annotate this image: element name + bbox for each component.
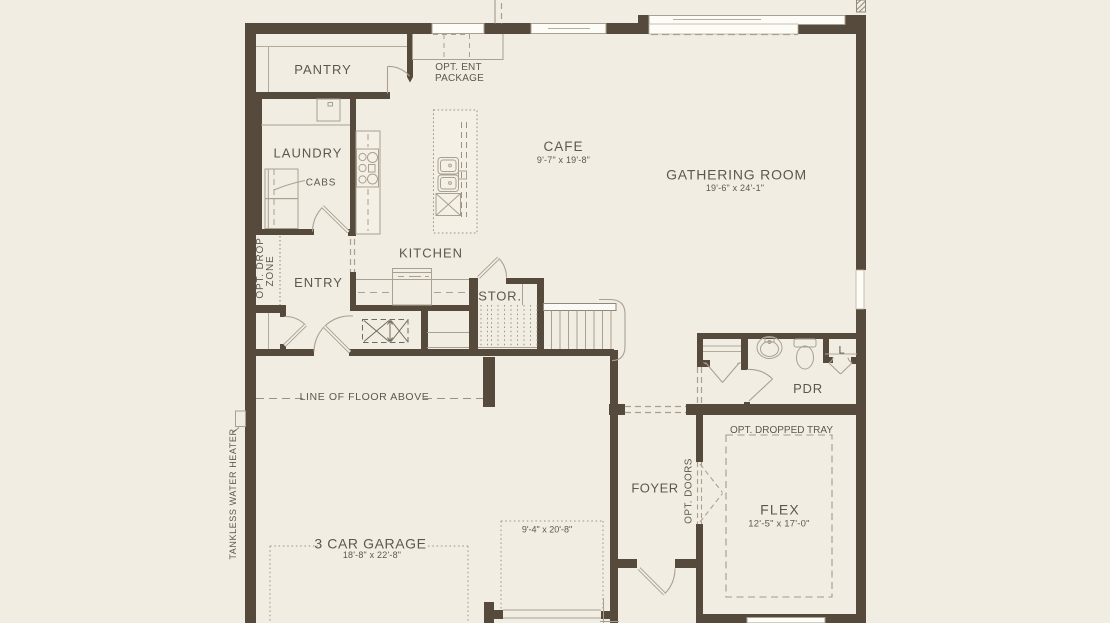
svg-text:12'-5" x 17'-0": 12'-5" x 17'-0" bbox=[748, 519, 809, 530]
svg-text:9'-7" x 19'-8": 9'-7" x 19'-8" bbox=[537, 155, 590, 165]
svg-text:OPT. ENT: OPT. ENT bbox=[435, 62, 482, 73]
svg-text:19'-6" x 24'-1": 19'-6" x 24'-1" bbox=[706, 183, 764, 193]
svg-text:PDR: PDR bbox=[793, 381, 823, 396]
svg-text:18'-8" x 22'-8": 18'-8" x 22'-8" bbox=[343, 550, 401, 560]
svg-text:L: L bbox=[838, 345, 844, 357]
svg-text:OPT. DROPPED TRAY: OPT. DROPPED TRAY bbox=[730, 425, 833, 436]
svg-text:ENTRY: ENTRY bbox=[294, 275, 343, 290]
svg-text:OPT. DOORS: OPT. DOORS bbox=[684, 458, 695, 524]
svg-text:PACKAGE: PACKAGE bbox=[435, 73, 484, 84]
svg-text:PANTRY: PANTRY bbox=[294, 62, 352, 77]
svg-text:KITCHEN: KITCHEN bbox=[399, 246, 463, 261]
svg-text:GATHERING ROOM: GATHERING ROOM bbox=[666, 167, 807, 183]
svg-text:LAUNDRY: LAUNDRY bbox=[274, 146, 343, 161]
svg-text:CAFE: CAFE bbox=[543, 139, 583, 154]
svg-text:FOYER: FOYER bbox=[631, 481, 678, 496]
svg-text:CABS: CABS bbox=[306, 178, 336, 189]
svg-text:STOR.: STOR. bbox=[478, 289, 522, 304]
svg-text:ZONE: ZONE bbox=[265, 256, 276, 287]
svg-text:9'-4" x 20'-8": 9'-4" x 20'-8" bbox=[522, 525, 572, 535]
svg-text:TANKLESS WATER HEATER: TANKLESS WATER HEATER bbox=[228, 428, 238, 559]
svg-text:LINE OF FLOOR ABOVE: LINE OF FLOOR ABOVE bbox=[300, 391, 430, 403]
svg-text:FLEX: FLEX bbox=[760, 502, 800, 518]
